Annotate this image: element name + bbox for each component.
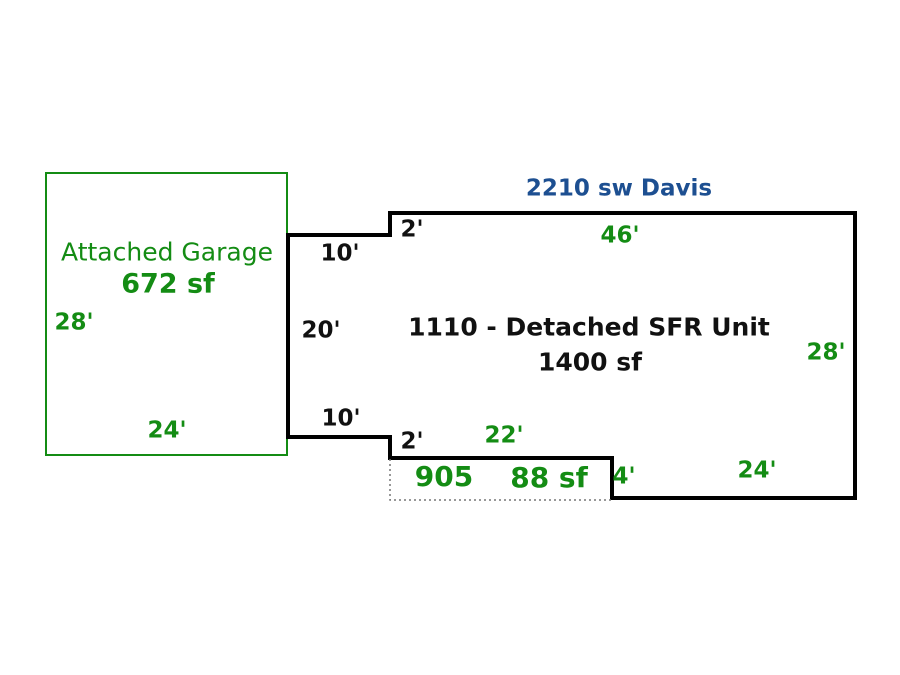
dim-top-step: 2' [400, 219, 423, 242]
dim-left-upper: 10' [320, 243, 359, 266]
garage-dim-left: 28' [54, 312, 93, 335]
unit-area: 1400 sf [538, 350, 642, 375]
property-sketch: 2210 sw Davis 1110 - Detached SFR Unit 1… [0, 0, 900, 675]
dim-bottom-step: 2' [400, 431, 423, 454]
porch-code: 905 [415, 463, 473, 491]
garage-dim-bottom: 24' [147, 420, 186, 443]
garage-label: Attached Garage [61, 240, 273, 265]
address-label: 2210 sw Davis [526, 178, 712, 201]
unit-title: 1110 - Detached SFR Unit [408, 315, 770, 340]
porch-dim-right: 4' [612, 466, 635, 489]
porch-area: 88 sf [510, 464, 588, 492]
dim-right: 28' [806, 342, 845, 365]
dim-bottom-right: 24' [737, 460, 776, 483]
garage-area: 672 sf [121, 271, 215, 298]
dim-left-lower: 10' [321, 408, 360, 431]
porch-dim-top: 22' [484, 425, 523, 448]
dim-left-mid: 20' [301, 320, 340, 343]
dim-top: 46' [600, 225, 639, 248]
